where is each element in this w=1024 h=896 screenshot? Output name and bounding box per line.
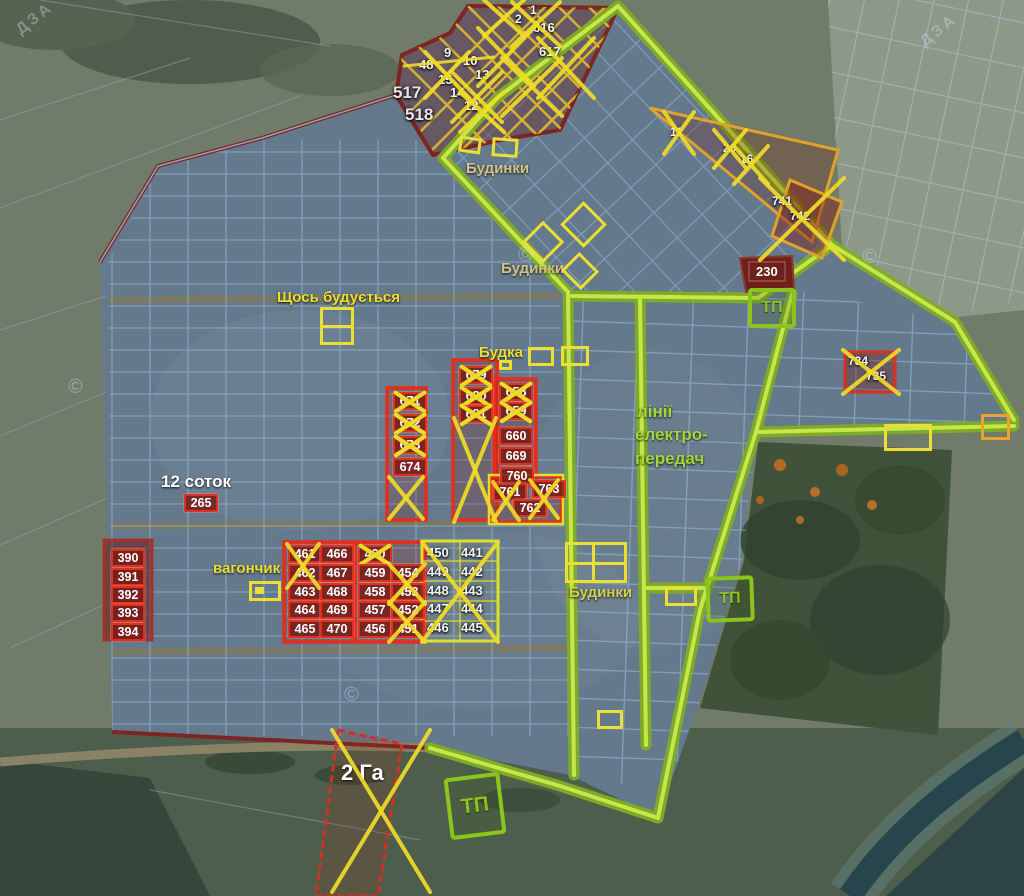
plot-number-742: 742	[790, 209, 810, 223]
plot-number-468: 468	[320, 583, 354, 601]
plot-number-672: 672	[393, 414, 427, 432]
plot-number-460: 460	[358, 545, 392, 563]
area-label: Будинки	[466, 160, 529, 177]
yellow-marker-box	[458, 136, 482, 155]
tp-substation-box: ТП	[443, 772, 506, 840]
plot-number-48: 48	[419, 57, 433, 72]
plot-number-518: 518	[405, 105, 433, 125]
area-label: електро-	[635, 425, 708, 445]
yellow-marker-box	[249, 581, 281, 601]
yellow-marker-box	[597, 710, 623, 729]
plot-number-462: 462	[288, 564, 322, 582]
plot-number-463: 463	[288, 583, 322, 601]
plot-number-14: 14	[450, 85, 464, 100]
plot-number-671: 671	[393, 392, 427, 410]
plot-number-447: 447	[427, 601, 449, 616]
plot-number-517: 517	[393, 83, 421, 103]
yellow-marker-box	[561, 252, 599, 290]
tp-substation-box: ТП	[748, 288, 796, 328]
yellow-marker-box	[560, 201, 607, 248]
plot-number-762: 762	[513, 499, 547, 517]
yellow-marker-box	[320, 307, 354, 345]
plot-number-461: 461	[288, 545, 322, 563]
plot-number-658: 658	[499, 383, 533, 401]
plot-number-456: 456	[358, 620, 392, 638]
plot-number-441: 441	[461, 545, 483, 560]
area-label: Щось будується	[277, 289, 400, 306]
watermark: ©	[68, 376, 83, 399]
plot-number-763: 763	[532, 480, 566, 498]
yellow-marker-box	[665, 586, 697, 606]
plot-number-741: 741	[772, 194, 792, 208]
plot-number-10: 10	[463, 53, 477, 68]
plot-number-446: 446	[427, 620, 449, 635]
yellow-marker-box	[565, 542, 627, 583]
plot-number-660: 660	[499, 427, 533, 445]
plot-number-1: 1	[530, 3, 537, 17]
plot-number-442: 442	[461, 564, 483, 579]
plot-number-13: 13	[475, 67, 489, 82]
plot-number-734: 734	[848, 354, 868, 368]
area-label: 2 Га	[341, 760, 384, 786]
plot-number-393: 393	[111, 604, 145, 622]
yellow-marker-box	[981, 414, 1010, 440]
watermark: ©	[862, 246, 877, 269]
plot-number-11: 11	[670, 125, 683, 139]
plot-number-391: 391	[111, 568, 145, 586]
area-label: Будка	[479, 344, 523, 361]
map-canvas: 2161661794810151314125175181120167417422…	[0, 0, 1024, 896]
yellow-marker-box	[528, 347, 554, 366]
plot-number-20: 20	[723, 141, 736, 155]
area-label: 12 соток	[161, 472, 231, 492]
plot-number-466: 466	[320, 545, 354, 563]
yellow-marker-box	[561, 346, 589, 366]
plot-number-669: 669	[499, 447, 533, 465]
plot-number-464: 464	[288, 601, 322, 619]
plot-number-2: 2	[515, 12, 522, 26]
area-label: передач	[635, 449, 704, 469]
tp-substation-box: ТП	[705, 575, 755, 623]
plot-number-230: 230	[748, 261, 786, 282]
plot-number-16: 16	[740, 152, 753, 166]
plot-number-673: 673	[393, 436, 427, 454]
plot-number-454: 454	[391, 564, 425, 582]
watermark: ДЗА	[13, 0, 57, 39]
plot-number-617: 617	[539, 44, 561, 59]
plot-number-458: 458	[358, 583, 392, 601]
plot-number-445: 445	[461, 620, 483, 635]
plot-number-674: 674	[393, 458, 427, 476]
annotation-layer: 2161661794810151314125175181120167417422…	[0, 0, 1024, 896]
marker-dot	[255, 587, 264, 594]
plot-number-467: 467	[320, 564, 354, 582]
plot-number-12: 12	[464, 98, 478, 113]
area-label: вагончик	[213, 560, 280, 577]
plot-number-680: 680	[459, 387, 493, 405]
plot-number-452: 452	[391, 601, 425, 619]
plot-number-453: 453	[391, 583, 425, 601]
yellow-marker-box	[491, 137, 518, 158]
plot-number-448: 448	[427, 583, 449, 598]
plot-number-449: 449	[427, 564, 449, 579]
area-label: Будинки	[569, 584, 632, 601]
plot-number-457: 457	[358, 601, 392, 619]
plot-number-9: 9	[444, 45, 451, 60]
watermark: ДЗА	[917, 11, 961, 51]
plot-number-443: 443	[461, 583, 483, 598]
watermark: ©	[518, 244, 533, 267]
plot-number-394: 394	[111, 623, 145, 641]
yellow-marker-box	[884, 424, 932, 451]
plot-number-392: 392	[111, 586, 145, 604]
watermark: ©	[344, 684, 359, 707]
plot-number-659: 659	[499, 402, 533, 420]
plot-number-265: 265	[184, 494, 218, 512]
plot-number-459: 459	[358, 564, 392, 582]
plot-number-465: 465	[288, 620, 322, 638]
plot-number-390: 390	[111, 549, 145, 567]
yellow-marker-box	[499, 360, 512, 370]
plot-number-450: 450	[427, 545, 449, 560]
plot-number-444: 444	[461, 601, 483, 616]
area-label: лінії	[637, 402, 672, 422]
plot-number-681: 681	[459, 405, 493, 423]
plot-number-469: 469	[320, 601, 354, 619]
plot-number-470: 470	[320, 620, 354, 638]
plot-number-735: 735	[866, 369, 886, 383]
plot-number-616: 616	[533, 20, 555, 35]
plot-number-679: 679	[459, 366, 493, 384]
plot-number-451: 451	[391, 620, 425, 638]
